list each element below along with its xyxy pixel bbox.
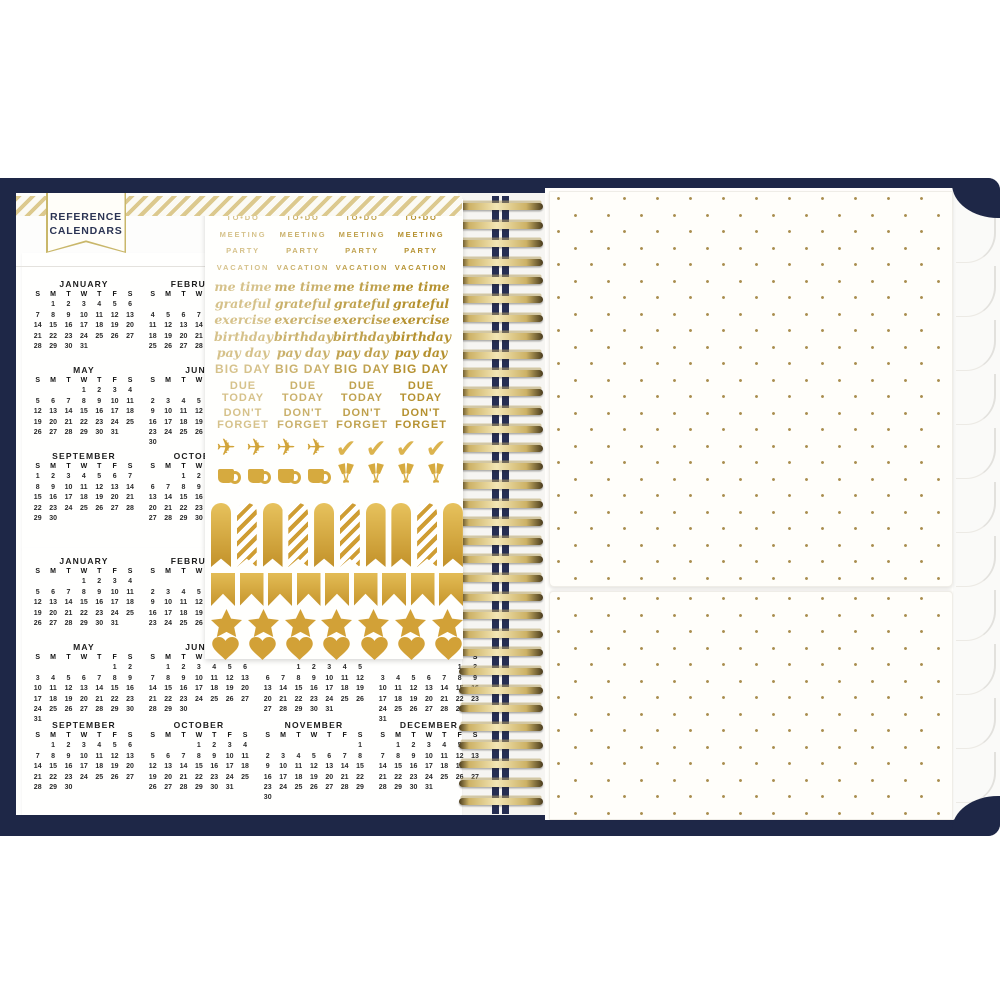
day: 4 — [76, 472, 91, 482]
day-header: T — [406, 731, 421, 741]
day-empty — [145, 741, 160, 751]
icon-slot — [361, 462, 391, 490]
icon-slot: ✔ — [331, 434, 361, 462]
icon-slot — [421, 462, 451, 490]
day: 10 — [160, 407, 175, 417]
sticker-word-line: VACATION — [214, 263, 272, 272]
day: 12 — [145, 762, 160, 772]
day: 20 — [45, 418, 60, 428]
sticker-word-line: DUE — [392, 380, 450, 392]
day: 31 — [222, 783, 237, 793]
airplane-icon: ✈ — [246, 435, 265, 461]
day: 25 — [237, 773, 252, 783]
day-empty — [76, 663, 91, 673]
day: 29 — [291, 705, 306, 715]
sticker-word: me time — [392, 279, 450, 294]
day-empty — [337, 741, 352, 751]
day: 11 — [237, 752, 252, 762]
day: 25 — [176, 428, 191, 438]
sticker-word-line: MEETING — [274, 230, 332, 239]
day: 6 — [122, 300, 137, 310]
star-icon — [358, 609, 389, 637]
day: 14 — [61, 598, 76, 608]
airplane-icon: ✈ — [216, 435, 235, 461]
day: 7 — [145, 674, 160, 684]
day-empty — [375, 741, 390, 751]
sticker-icon-row — [211, 462, 461, 490]
sticker-word: BIG DAY — [274, 362, 332, 376]
day: 26 — [30, 619, 45, 629]
month-grid: SMTWTFS123456789101112131415161718192021… — [30, 731, 138, 793]
day: 17 — [61, 493, 76, 503]
day-header: M — [160, 376, 175, 386]
day-empty — [160, 472, 175, 482]
day: 19 — [406, 695, 421, 705]
icon-slot: ✔ — [361, 434, 391, 462]
day: 22 — [45, 773, 60, 783]
day: 16 — [145, 609, 160, 619]
day: 2 — [145, 588, 160, 598]
day: 13 — [322, 762, 337, 772]
day: 21 — [160, 504, 175, 514]
day: 11 — [176, 598, 191, 608]
day: 3 — [61, 472, 76, 482]
day: 27 — [260, 705, 275, 715]
day: 10 — [76, 311, 91, 321]
day: 3 — [107, 577, 122, 587]
day: 17 — [107, 407, 122, 417]
day: 4 — [176, 397, 191, 407]
airplane-icon: ✈ — [276, 435, 295, 461]
day: 31 — [107, 428, 122, 438]
day: 24 — [61, 504, 76, 514]
star-icon — [432, 609, 463, 637]
spiral-loop — [459, 594, 543, 601]
day: 10 — [160, 598, 175, 608]
flag-sticker — [297, 573, 321, 606]
day: 19 — [352, 684, 367, 694]
mug-icon — [218, 469, 234, 483]
day-empty — [145, 663, 160, 673]
day: 24 — [421, 773, 436, 783]
day: 2 — [92, 577, 107, 587]
day-header: S — [122, 653, 137, 663]
day: 27 — [160, 783, 175, 793]
day-empty — [61, 663, 76, 673]
day: 14 — [437, 684, 452, 694]
day: 3 — [375, 674, 390, 684]
day: 15 — [76, 598, 91, 608]
spiral-loop — [459, 259, 543, 266]
spiral-loop — [459, 333, 543, 340]
day: 23 — [92, 418, 107, 428]
day: 25 — [390, 705, 405, 715]
heart-icon — [248, 637, 277, 660]
day: 4 — [337, 663, 352, 673]
day: 10 — [322, 674, 337, 684]
day: 3 — [76, 741, 91, 751]
icon-slot — [211, 462, 241, 490]
day: 6 — [176, 311, 191, 321]
day: 4 — [291, 752, 306, 762]
day: 24 — [107, 418, 122, 428]
day: 6 — [145, 483, 160, 493]
sticker-icon-row: ✈✈✈✈✔✔✔✔ — [211, 434, 461, 462]
day: 10 — [375, 684, 390, 694]
day: 18 — [122, 407, 137, 417]
sticker-word: VACATION — [274, 263, 332, 272]
day: 10 — [275, 762, 290, 772]
sticker-word-line: pay day — [333, 345, 391, 360]
day: 6 — [107, 472, 122, 482]
month-grid: SMTWTFS123456789101112131415161718192021… — [30, 462, 138, 524]
sticker-word-line: TODAY — [333, 392, 391, 404]
sticker-word-line: pay day — [274, 345, 332, 360]
sticker-word: DON'TFORGET — [392, 407, 450, 432]
day-header: M — [45, 567, 60, 577]
day-header: S — [122, 731, 137, 741]
day: 7 — [437, 674, 452, 684]
day-header: S — [122, 567, 137, 577]
day: 11 — [390, 684, 405, 694]
day-empty — [260, 663, 275, 673]
day: 19 — [306, 773, 321, 783]
day: 13 — [260, 684, 275, 694]
day: 27 — [107, 504, 122, 514]
day: 9 — [467, 674, 482, 684]
sticker-word: VACATION — [333, 263, 391, 272]
day: 14 — [122, 483, 137, 493]
mug-handle — [289, 471, 301, 484]
day: 9 — [260, 762, 275, 772]
day: 12 — [30, 598, 45, 608]
day: 30 — [92, 428, 107, 438]
day: 9 — [406, 752, 421, 762]
day: 6 — [322, 752, 337, 762]
mug-icon — [278, 469, 294, 483]
day: 27 — [122, 773, 137, 783]
day: 26 — [92, 504, 107, 514]
day: 24 — [160, 428, 175, 438]
day: 12 — [92, 483, 107, 493]
flag-row — [211, 573, 463, 606]
day-header: S — [122, 376, 137, 386]
day-header: S — [30, 290, 45, 300]
day-empty — [160, 386, 175, 396]
day: 23 — [467, 695, 482, 705]
sticker-word-line: DON'T — [274, 407, 332, 419]
icon-slot: ✔ — [391, 434, 421, 462]
day: 25 — [92, 332, 107, 342]
day: 18 — [207, 684, 222, 694]
day: 27 — [237, 695, 252, 705]
day: 6 — [237, 663, 252, 673]
day-header: S — [30, 567, 45, 577]
day: 16 — [92, 407, 107, 417]
flag-sticker — [325, 573, 349, 606]
day: 22 — [191, 773, 206, 783]
day: 30 — [92, 619, 107, 629]
day-header: M — [160, 290, 175, 300]
day: 13 — [45, 407, 60, 417]
day: 18 — [122, 598, 137, 608]
sticker-word: DUETODAY — [333, 380, 391, 405]
day: 13 — [107, 483, 122, 493]
day: 15 — [45, 762, 60, 772]
day: 13 — [160, 762, 175, 772]
day: 8 — [452, 674, 467, 684]
airplane-icon: ✈ — [306, 435, 325, 461]
day-header: T — [61, 567, 76, 577]
sticker-word: pay day — [274, 345, 332, 360]
day: 28 — [375, 783, 390, 793]
day: 27 — [45, 428, 60, 438]
day: 22 — [452, 695, 467, 705]
day: 31 — [107, 619, 122, 629]
day: 24 — [160, 619, 175, 629]
flag-sticker — [211, 573, 235, 606]
sticker-word-line: BIG DAY — [392, 362, 450, 376]
flag-sticker — [240, 573, 264, 606]
day-empty — [437, 663, 452, 673]
sticker-word: pay day — [392, 345, 450, 360]
day: 12 — [406, 684, 421, 694]
day: 18 — [76, 493, 91, 503]
day: 28 — [176, 783, 191, 793]
day: 26 — [107, 773, 122, 783]
day: 5 — [352, 663, 367, 673]
sticker-word-line: MEETING — [392, 230, 450, 239]
day-header: F — [452, 731, 467, 741]
spiral-loop — [459, 705, 543, 712]
sticker-word: pay day — [214, 345, 272, 360]
day: 13 — [176, 321, 191, 331]
day: 25 — [337, 695, 352, 705]
day-empty — [160, 300, 175, 310]
day: 20 — [107, 493, 122, 503]
day: 22 — [30, 504, 45, 514]
day-header: S — [237, 731, 252, 741]
day: 27 — [45, 619, 60, 629]
sticker-word-line: FORGET — [333, 419, 391, 431]
day: 4 — [92, 300, 107, 310]
star-icon — [395, 609, 426, 637]
day-empty — [61, 386, 76, 396]
day-header: W — [191, 731, 206, 741]
day: 9 — [92, 397, 107, 407]
day: 28 — [61, 619, 76, 629]
day: 24 — [76, 332, 91, 342]
day-header: S — [145, 376, 160, 386]
day-header: T — [61, 653, 76, 663]
day: 19 — [30, 609, 45, 619]
day: 2 — [260, 752, 275, 762]
day: 9 — [92, 588, 107, 598]
spiral-loop — [459, 798, 543, 805]
day: 21 — [61, 418, 76, 428]
month-grid: SMTWTFS123456789101112131415161718192021… — [30, 653, 138, 726]
sticker-word: PARTY — [333, 246, 391, 255]
day-header: S — [145, 653, 160, 663]
icon-slot: ✈ — [301, 434, 331, 462]
spiral-loop — [459, 389, 543, 396]
day: 13 — [145, 493, 160, 503]
day: 12 — [107, 752, 122, 762]
day: 8 — [107, 674, 122, 684]
day-empty — [145, 577, 160, 587]
day: 7 — [30, 752, 45, 762]
dotted-pocket — [549, 591, 953, 820]
day-header: S — [145, 567, 160, 577]
spiral-loop — [459, 296, 543, 303]
day: 3 — [160, 588, 175, 598]
day: 1 — [107, 663, 122, 673]
day-empty — [406, 663, 421, 673]
day: 19 — [145, 773, 160, 783]
day: 2 — [122, 663, 137, 673]
day: 25 — [45, 705, 60, 715]
day-empty — [30, 386, 45, 396]
day: 18 — [437, 762, 452, 772]
day-header: T — [322, 731, 337, 741]
calendar-month-september: SEPTEMBERSMTWTFS123456789101112131415161… — [30, 720, 138, 793]
day: 1 — [291, 663, 306, 673]
star-row — [211, 609, 463, 637]
day: 10 — [61, 483, 76, 493]
day-empty — [30, 663, 45, 673]
day: 17 — [222, 762, 237, 772]
sticker-word: VACATION — [392, 263, 450, 272]
day-header: M — [45, 731, 60, 741]
sticker-word: DUETODAY — [392, 380, 450, 405]
spiral-loop — [459, 519, 543, 526]
day: 6 — [260, 674, 275, 684]
day-header: F — [107, 462, 122, 472]
sticker-word: BIG DAY — [214, 362, 272, 376]
day: 11 — [76, 483, 91, 493]
day-header: W — [306, 731, 321, 741]
spiral-loop — [459, 612, 543, 619]
day: 24 — [191, 695, 206, 705]
month-title: OCTOBER — [145, 720, 253, 731]
day-header: T — [176, 567, 191, 577]
day-header: S — [145, 290, 160, 300]
sticker-word: me time — [333, 279, 391, 294]
day: 5 — [30, 588, 45, 598]
day: 10 — [191, 674, 206, 684]
day-empty — [160, 577, 175, 587]
calendar-month-january: JANUARYSMTWTFS12345678910111213141516171… — [30, 279, 138, 352]
day: 29 — [390, 783, 405, 793]
day: 30 — [122, 705, 137, 715]
day-header: M — [160, 731, 175, 741]
day-header: T — [92, 376, 107, 386]
day-header: T — [207, 731, 222, 741]
day: 8 — [176, 483, 191, 493]
champagne-icon — [393, 462, 419, 490]
sticker-word-line: FORGET — [392, 419, 450, 431]
day: 7 — [176, 752, 191, 762]
spiral-loop — [459, 222, 543, 229]
day-empty — [375, 663, 390, 673]
sticker-word: birthday — [274, 329, 332, 344]
day: 8 — [160, 674, 175, 684]
icon-slot: ✈ — [211, 434, 241, 462]
day: 15 — [390, 762, 405, 772]
day: 16 — [45, 493, 60, 503]
day: 28 — [145, 705, 160, 715]
sticker-word-line: DON'T — [214, 407, 272, 419]
sticker-word-line: birthday — [333, 329, 391, 344]
day: 19 — [107, 321, 122, 331]
day: 24 — [30, 705, 45, 715]
day-empty — [61, 577, 76, 587]
champagne-icon — [363, 462, 389, 490]
sticker-word: VACATION — [214, 263, 272, 272]
day: 15 — [76, 407, 91, 417]
day: 19 — [30, 418, 45, 428]
day: 26 — [107, 332, 122, 342]
day-header: W — [76, 653, 91, 663]
day-header: F — [107, 731, 122, 741]
day: 1 — [45, 741, 60, 751]
day-header: F — [107, 376, 122, 386]
day: 25 — [122, 609, 137, 619]
sticker-word-line: me time — [274, 279, 332, 294]
spiral-loop — [459, 408, 543, 415]
sticker-word-line: me time — [392, 279, 450, 294]
day: 22 — [107, 695, 122, 705]
day: 9 — [45, 483, 60, 493]
day-empty — [176, 386, 191, 396]
day: 23 — [45, 504, 60, 514]
sticker-word: DON'TFORGET — [214, 407, 272, 432]
spiral-loop — [459, 501, 543, 508]
sticker-word: me time — [214, 279, 272, 294]
day: 8 — [45, 311, 60, 321]
month-title: SEPTEMBER — [30, 720, 138, 731]
day: 4 — [176, 588, 191, 598]
day: 7 — [375, 752, 390, 762]
day: 8 — [76, 397, 91, 407]
day: 4 — [122, 577, 137, 587]
spiral-loop — [459, 370, 543, 377]
day: 3 — [30, 674, 45, 684]
day: 3 — [222, 741, 237, 751]
month-grid: SMTWTFS123456789101112131415161718192021… — [30, 567, 138, 629]
sticker-word-line: TODAY — [274, 392, 332, 404]
day: 17 — [191, 684, 206, 694]
day: 15 — [291, 684, 306, 694]
day-header: W — [76, 290, 91, 300]
day: 16 — [306, 684, 321, 694]
day: 26 — [145, 783, 160, 793]
flag-sticker — [382, 573, 406, 606]
day: 26 — [222, 695, 237, 705]
heart-icon — [211, 637, 240, 660]
flag-sticker — [268, 573, 292, 606]
day: 21 — [176, 773, 191, 783]
day: 2 — [176, 663, 191, 673]
day: 16 — [145, 418, 160, 428]
sticker-word: me time — [274, 279, 332, 294]
day-header: T — [176, 731, 191, 741]
day: 6 — [45, 397, 60, 407]
day-header: T — [92, 290, 107, 300]
day: 30 — [306, 705, 321, 715]
day: 14 — [275, 684, 290, 694]
day: 14 — [145, 684, 160, 694]
